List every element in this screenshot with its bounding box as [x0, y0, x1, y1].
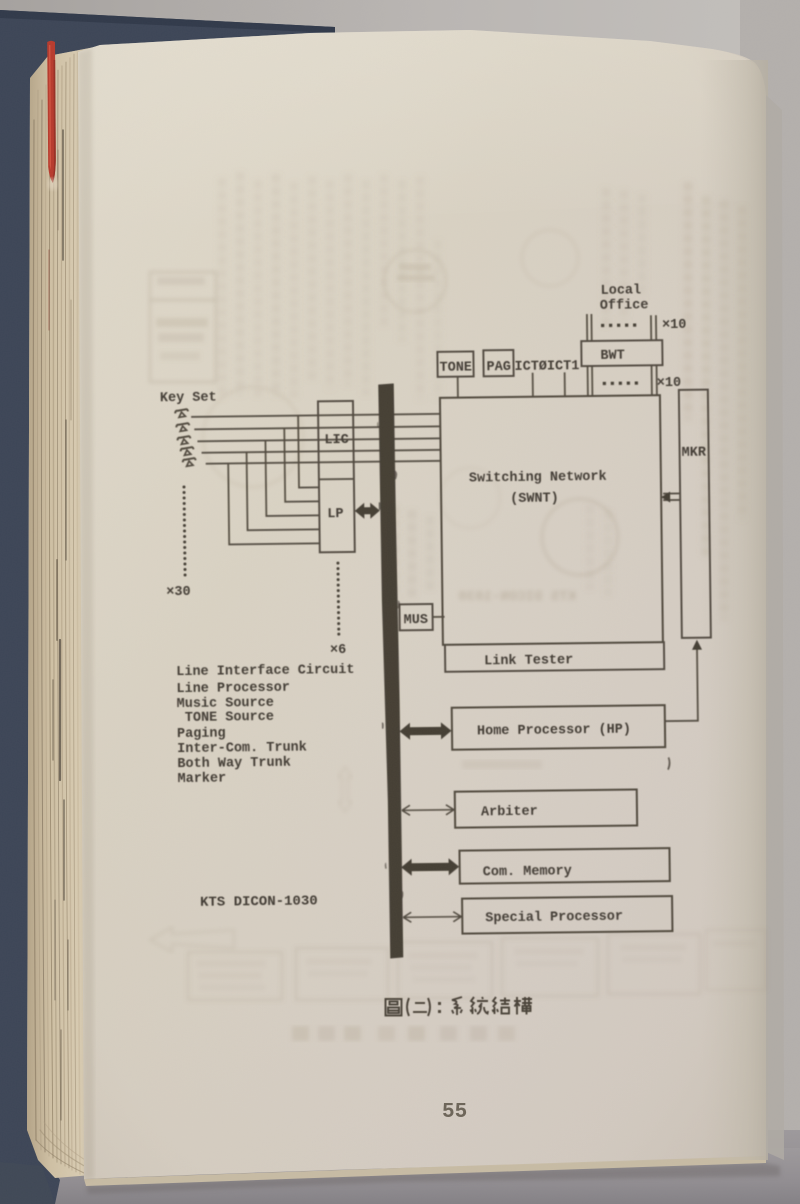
svg-text:55: 55: [442, 1101, 467, 1124]
